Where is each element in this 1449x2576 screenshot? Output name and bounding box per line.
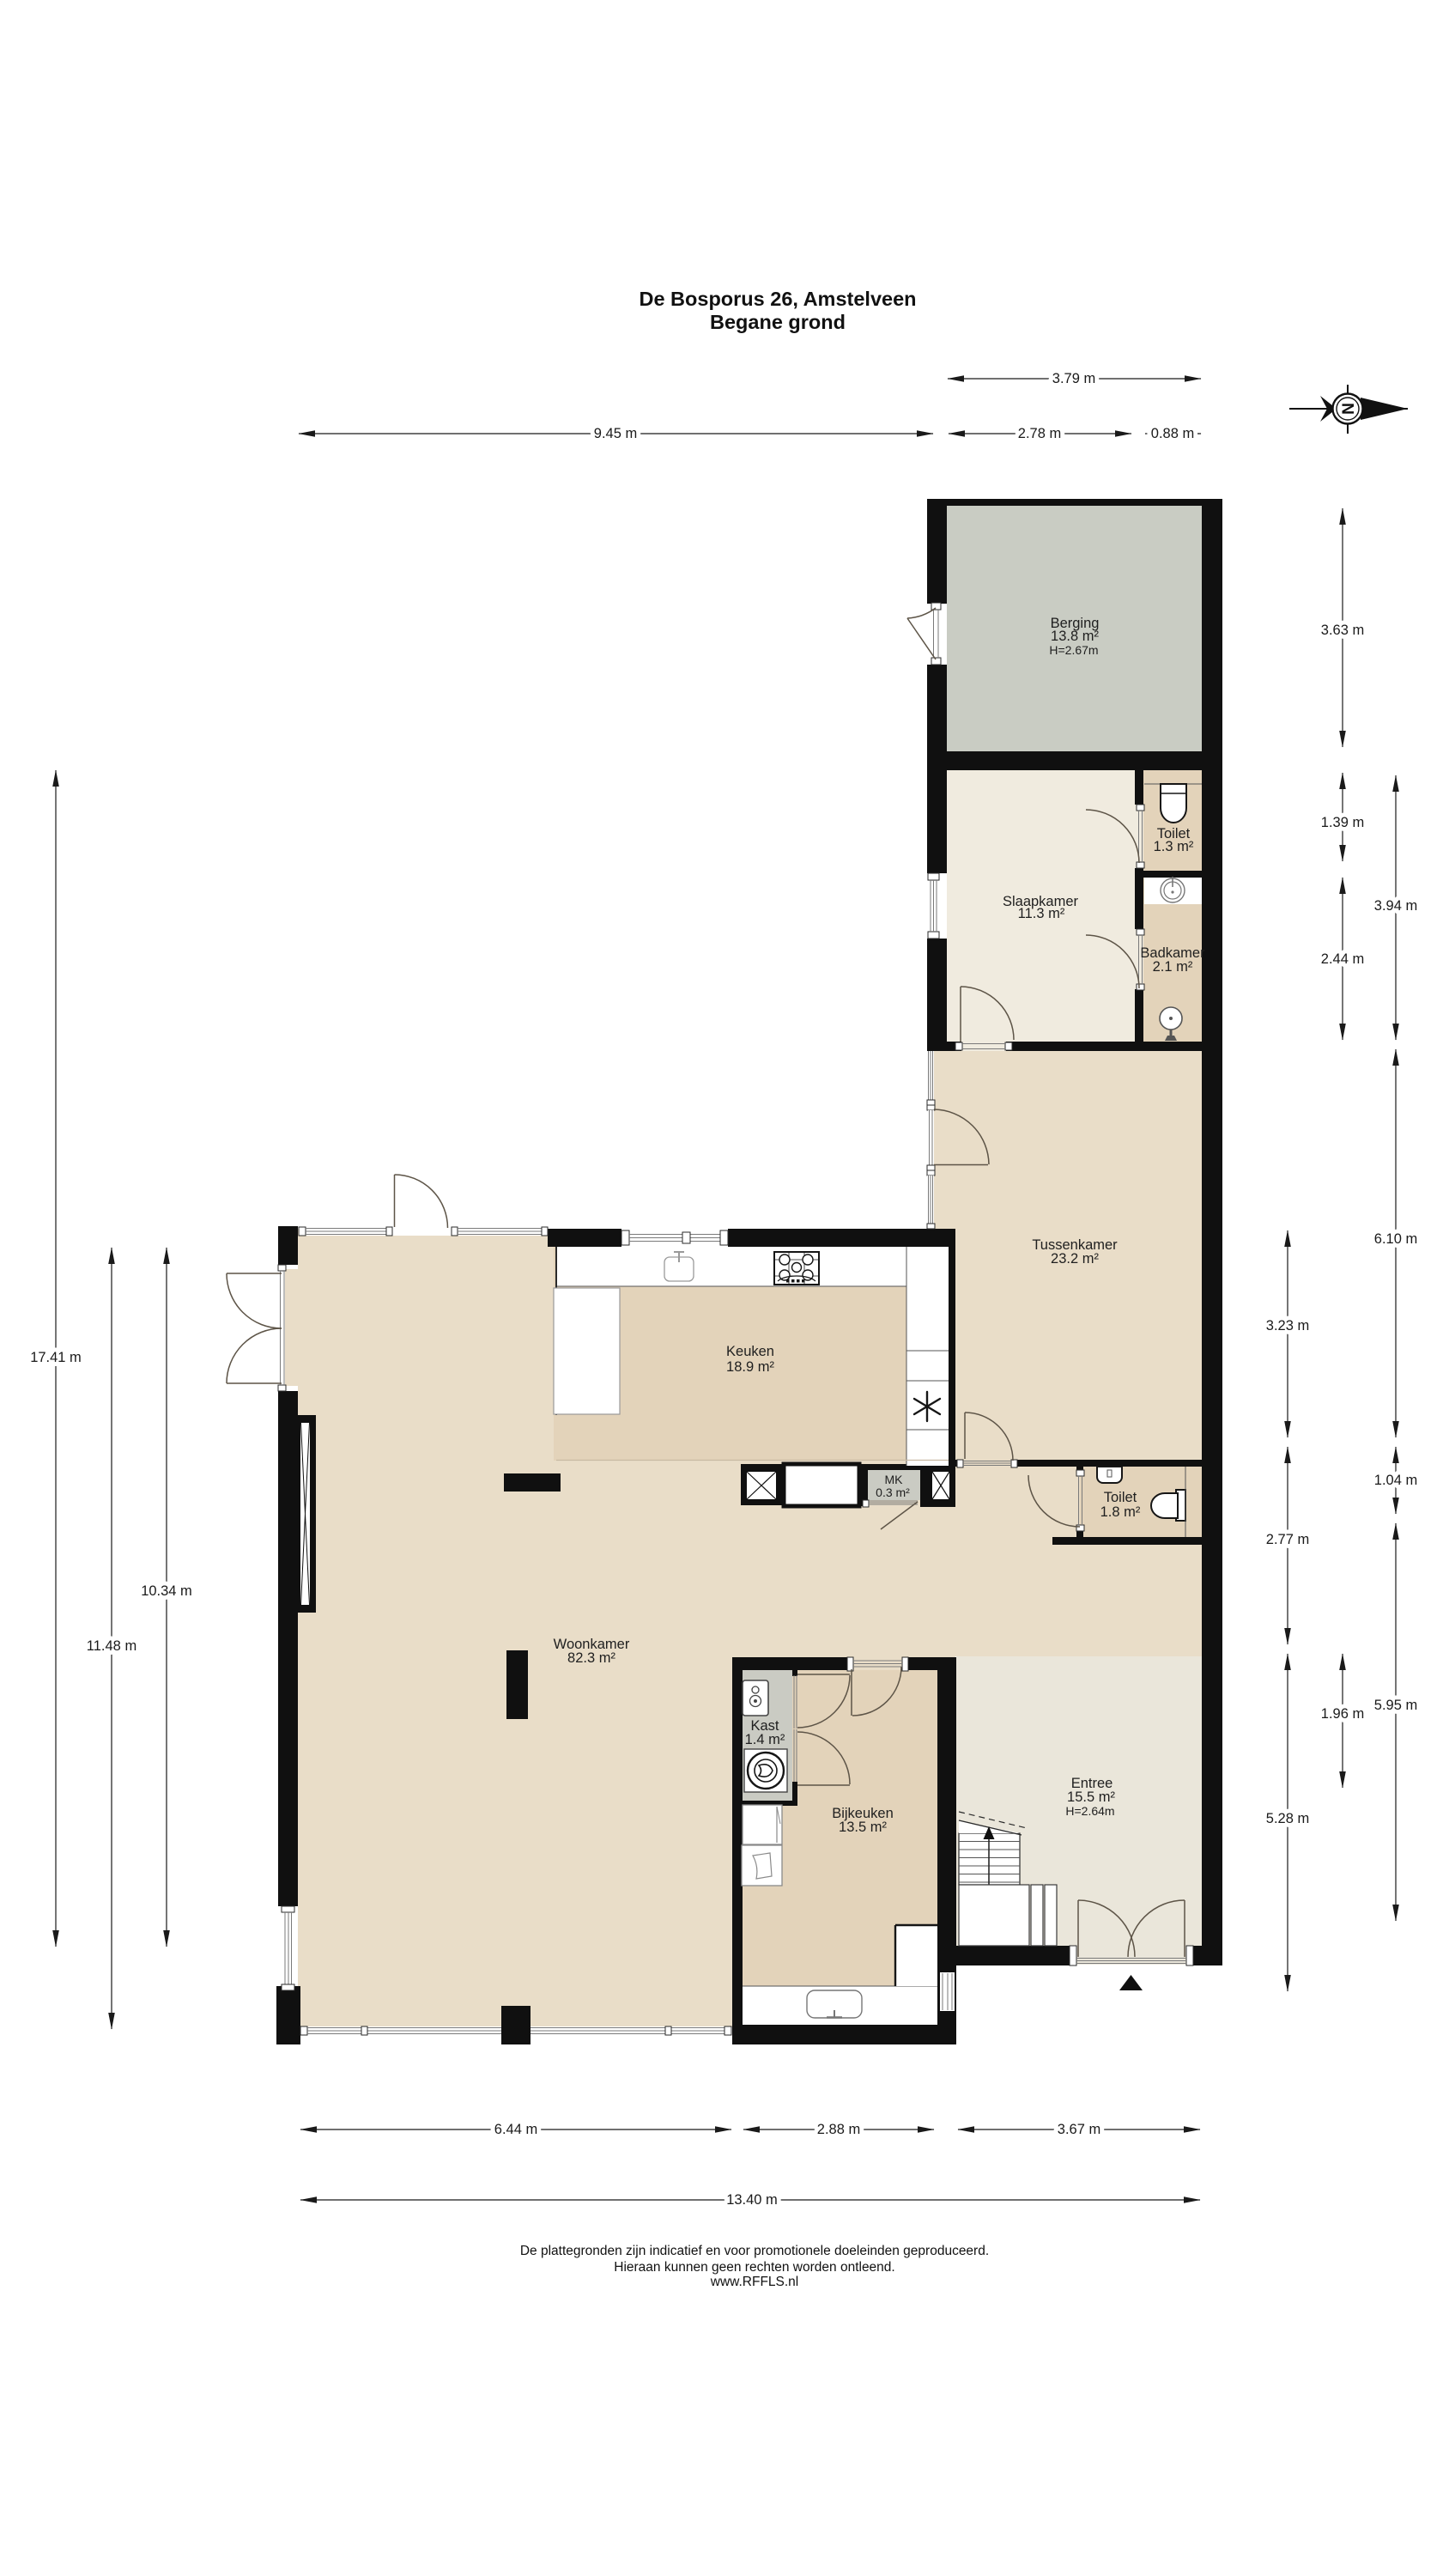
svg-text:82.3 m²: 82.3 m² (567, 1650, 615, 1666)
svg-text:10.34 m: 10.34 m (141, 1583, 192, 1599)
svg-text:9.45 m: 9.45 m (594, 426, 637, 441)
svg-text:5.28 m: 5.28 m (1266, 1811, 1309, 1826)
svg-text:5.95 m: 5.95 m (1374, 1698, 1417, 1713)
svg-text:MK: MK (885, 1473, 904, 1486)
svg-text:1.8 m²: 1.8 m² (1100, 1504, 1141, 1520)
svg-text:11.3 m²: 11.3 m² (1018, 906, 1065, 921)
svg-text:23.2 m²: 23.2 m² (1051, 1251, 1099, 1267)
svg-text:Toilet: Toilet (1104, 1490, 1137, 1505)
svg-text:2.88 m: 2.88 m (817, 2122, 860, 2137)
svg-text:2.1 m²: 2.1 m² (1153, 959, 1193, 975)
svg-text:11.48 m: 11.48 m (87, 1638, 136, 1654)
svg-text:H=2.67m: H=2.67m (1049, 643, 1098, 657)
svg-text:13.8 m²: 13.8 m² (1051, 629, 1099, 644)
svg-text:1.04 m: 1.04 m (1374, 1473, 1417, 1488)
svg-text:0.88 m: 0.88 m (1151, 426, 1194, 441)
svg-text:3.94 m: 3.94 m (1374, 898, 1417, 914)
svg-text:18.9 m²: 18.9 m² (726, 1359, 774, 1375)
svg-text:De plattegronden zijn indicati: De plattegronden zijn indicatief en voor… (520, 2244, 989, 2258)
svg-text:13.5 m²: 13.5 m² (839, 1820, 887, 1835)
svg-text:0.3 m²: 0.3 m² (876, 1485, 910, 1499)
svg-text:2.77 m: 2.77 m (1266, 1532, 1309, 1547)
svg-text:H=2.64m: H=2.64m (1065, 1804, 1114, 1818)
svg-text:3.23 m: 3.23 m (1266, 1318, 1309, 1334)
svg-text:1.39 m: 1.39 m (1321, 815, 1364, 830)
svg-text:2.44 m: 2.44 m (1321, 951, 1364, 967)
svg-text:De Bosporus 26, Amstelveen: De Bosporus 26, Amstelveen (639, 288, 916, 310)
svg-text:3.67 m: 3.67 m (1058, 2122, 1100, 2137)
svg-text:N: N (1338, 403, 1356, 415)
svg-text:3.63 m: 3.63 m (1321, 623, 1364, 638)
svg-text:13.40 m: 13.40 m (726, 2192, 778, 2208)
svg-text:17.41 m: 17.41 m (30, 1350, 82, 1365)
svg-text:1.96 m: 1.96 m (1321, 1706, 1364, 1722)
svg-text:www.RFFLS.nl: www.RFFLS.nl (710, 2275, 799, 2289)
svg-text:3.79 m: 3.79 m (1052, 371, 1095, 386)
svg-text:Keuken: Keuken (726, 1344, 774, 1359)
svg-text:Begane grond: Begane grond (710, 311, 846, 333)
svg-text:1.3 m²: 1.3 m² (1154, 839, 1194, 854)
svg-text:6.10 m: 6.10 m (1374, 1231, 1417, 1247)
svg-text:1.4 m²: 1.4 m² (745, 1732, 785, 1747)
svg-text:15.5 m²: 15.5 m² (1067, 1789, 1115, 1805)
svg-text:Hieraan kunnen geen rechten wo: Hieraan kunnen geen rechten worden ontle… (614, 2260, 894, 2275)
svg-text:2.78 m: 2.78 m (1018, 426, 1061, 441)
svg-text:6.44 m: 6.44 m (494, 2122, 537, 2137)
